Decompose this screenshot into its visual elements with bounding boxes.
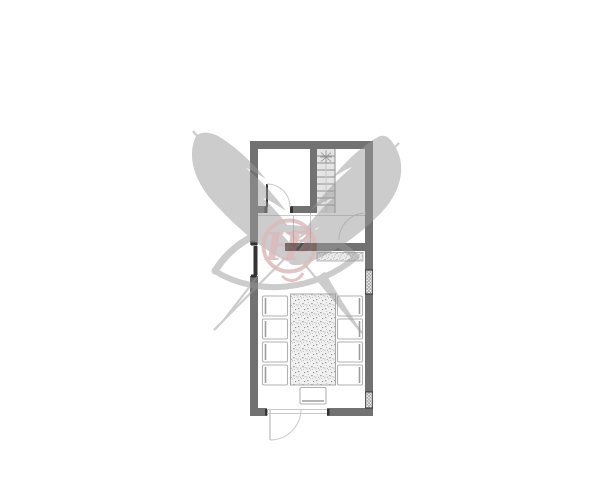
chair — [338, 342, 363, 362]
exterior-wall-top — [250, 141, 373, 149]
exterior-wall-bottom-right-stub — [327, 408, 373, 416]
door-jamb — [251, 243, 257, 246]
exterior-wall-left-lower — [250, 276, 258, 416]
chair — [263, 365, 288, 385]
window-opening — [365, 270, 373, 294]
chair — [263, 319, 288, 339]
dining-table — [291, 294, 336, 385]
window-opening — [365, 392, 373, 408]
chair — [263, 342, 288, 362]
floor-plan-canvas: H B — [0, 0, 600, 479]
watermark-curl — [282, 273, 303, 281]
exterior-wall-bottom-left-stub — [250, 408, 267, 416]
watermark-letter-b: B — [288, 225, 314, 259]
door-jamb — [327, 409, 330, 416]
interior-wall-stair-divider — [310, 149, 317, 213]
chair — [263, 296, 288, 316]
chair — [338, 365, 363, 385]
door-leaf-left-wall — [254, 246, 258, 275]
chair — [300, 388, 326, 405]
floor-plan-image: H B — [0, 0, 600, 479]
door-jamb — [290, 207, 293, 214]
